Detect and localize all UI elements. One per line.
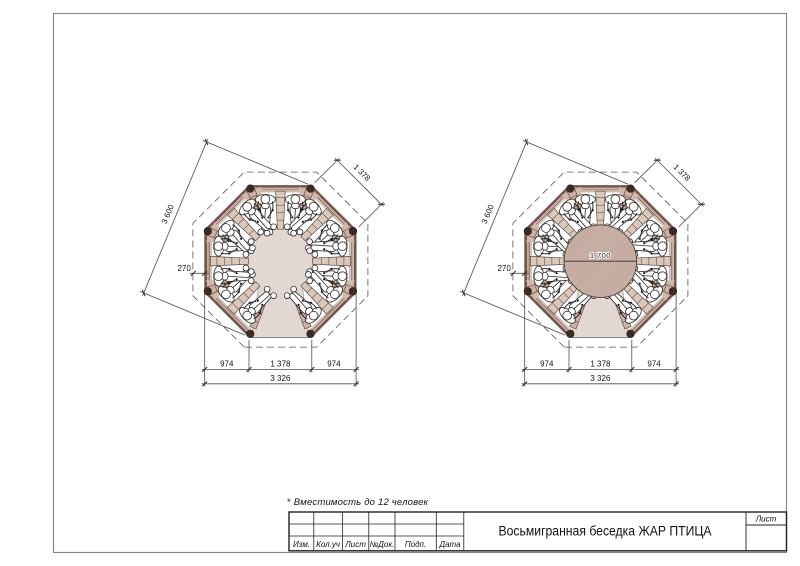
svg-text:№Док.: №Док. xyxy=(370,540,395,549)
svg-text:1 378: 1 378 xyxy=(590,360,611,369)
svg-text:270: 270 xyxy=(497,264,511,273)
svg-text:* Вместимость до 12 человек: * Вместимость до 12 человек xyxy=(287,497,429,508)
svg-text:Кол.уч: Кол.уч xyxy=(316,540,340,549)
svg-text:Лист: Лист xyxy=(755,515,777,524)
svg-text:Подп.: Подп. xyxy=(405,540,426,549)
svg-text:270: 270 xyxy=(177,264,191,273)
svg-text:Лист: Лист xyxy=(344,540,366,549)
svg-text:1 378: 1 378 xyxy=(270,360,291,369)
svg-text:974: 974 xyxy=(540,360,554,369)
svg-text:3 326: 3 326 xyxy=(270,374,291,383)
svg-text:Восьмигранная беседка ЖАР ПТИЦ: Восьмигранная беседка ЖАР ПТИЦА xyxy=(499,524,712,539)
svg-text:974: 974 xyxy=(220,360,234,369)
svg-text:3 326: 3 326 xyxy=(590,374,611,383)
svg-text:974: 974 xyxy=(327,360,341,369)
svg-text:974: 974 xyxy=(647,360,661,369)
svg-text:1 700: 1 700 xyxy=(590,251,611,260)
svg-text:Дата: Дата xyxy=(438,540,461,549)
svg-text:Изм.: Изм. xyxy=(293,540,310,549)
